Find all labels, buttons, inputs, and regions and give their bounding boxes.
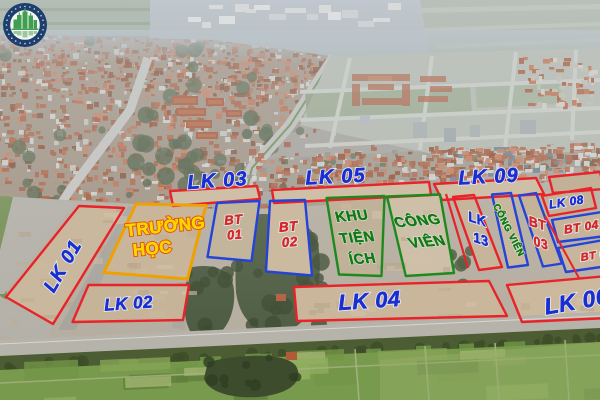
svg-text:LK 05: LK 05 bbox=[305, 164, 367, 189]
svg-text:LK 02: LK 02 bbox=[104, 292, 154, 314]
svg-text:VIÊN: VIÊN bbox=[405, 232, 449, 252]
svg-text:KHU: KHU bbox=[334, 208, 371, 226]
svg-text:BT: BT bbox=[224, 211, 244, 228]
svg-text:ÍCH: ÍCH bbox=[347, 250, 378, 268]
svg-text:LK 09: LK 09 bbox=[458, 164, 520, 189]
svg-text:01: 01 bbox=[226, 226, 243, 242]
svg-text:LK 03: LK 03 bbox=[187, 168, 249, 194]
svg-text:LK 04: LK 04 bbox=[337, 286, 401, 315]
svg-text:BT: BT bbox=[278, 218, 299, 235]
svg-text:02: 02 bbox=[281, 234, 298, 250]
